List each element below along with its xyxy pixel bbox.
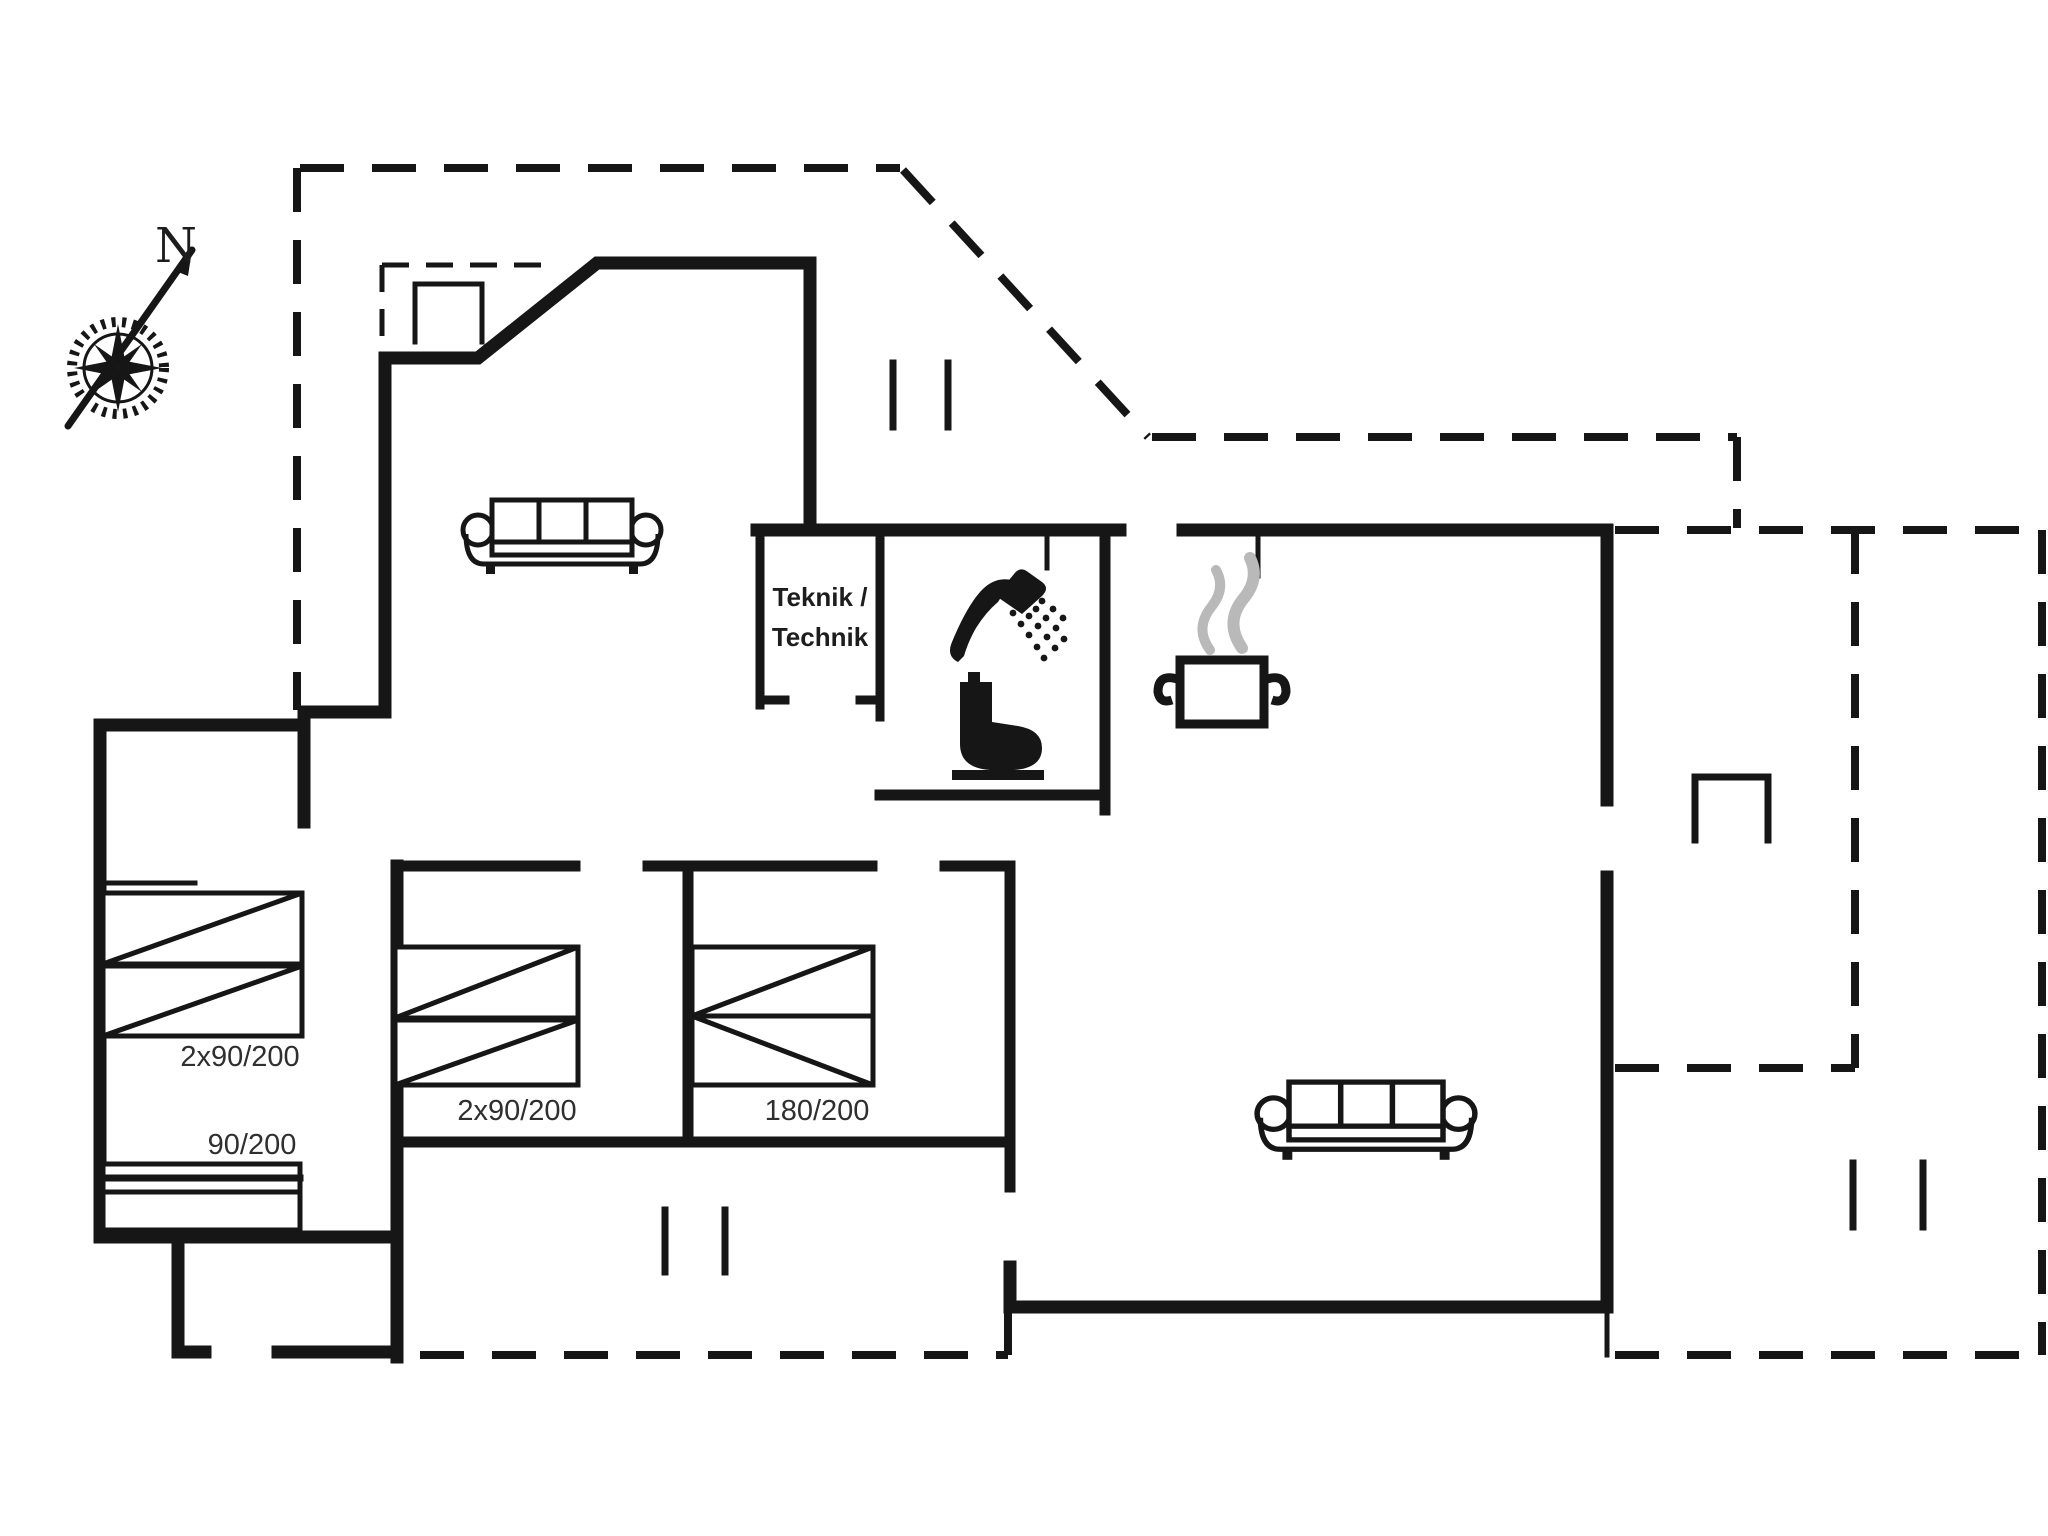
threshold-marker <box>893 363 948 427</box>
terrace-dashed-outline <box>297 168 2042 1355</box>
sofa-icon <box>1257 1082 1475 1160</box>
grill-icon <box>1695 777 1768 840</box>
bed-double-right <box>692 947 873 1085</box>
interior-walls <box>100 530 1258 1187</box>
threshold-marker <box>1853 1163 1923 1227</box>
technical-room-label-line2: Technik <box>772 622 869 652</box>
compass-rose-icon <box>68 250 192 426</box>
bed-double-middle <box>395 947 578 1085</box>
sofa-icon <box>463 500 661 574</box>
threshold-marker <box>665 1210 725 1272</box>
bed-size-label: 2x90/200 <box>457 1095 576 1127</box>
north-label: N <box>155 218 197 274</box>
bed-size-label: 90/200 <box>208 1129 297 1161</box>
cooking-pot-icon <box>1158 558 1286 724</box>
bed-single-left <box>103 1164 300 1230</box>
exterior-walls <box>100 263 1607 1357</box>
floor-plan: N Teknik / Technik 2x90/200 90/200 2x90/… <box>0 0 2048 1536</box>
fireplace-icon <box>415 284 482 342</box>
bed-size-label: 2x90/200 <box>180 1041 299 1073</box>
steam-icon <box>1233 558 1253 648</box>
bed-double-left <box>103 893 302 1036</box>
floor-plan-page: N Teknik / Technik 2x90/200 90/200 2x90/… <box>0 0 2048 1536</box>
steam-icon <box>1202 570 1220 650</box>
technical-room-label-line1: Teknik / <box>773 582 868 612</box>
bed-size-label: 180/200 <box>765 1095 870 1127</box>
shower-icon <box>950 569 1067 662</box>
toilet-icon <box>952 672 1044 780</box>
